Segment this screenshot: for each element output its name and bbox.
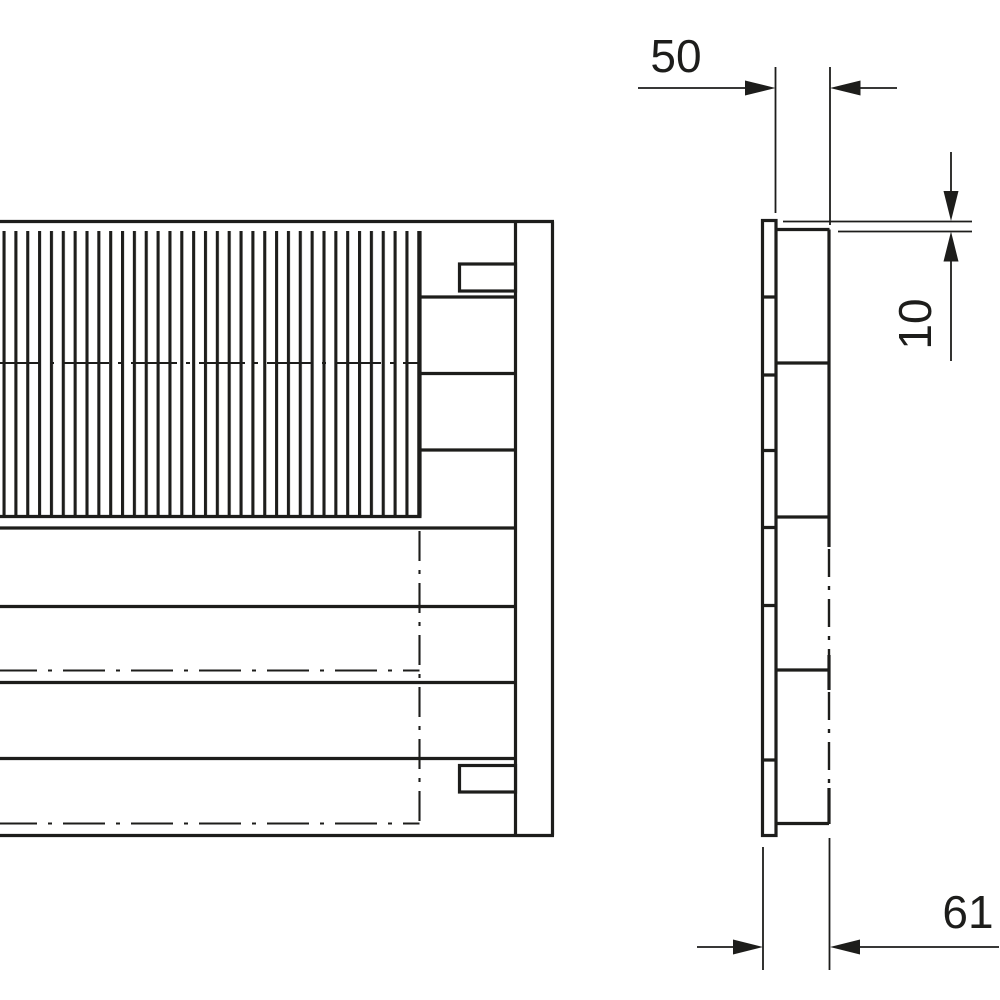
front-section-lines-column [420, 297, 516, 450]
dim10-arrow-up [944, 232, 959, 262]
technical-drawing: 50 10 61 [0, 0, 1000, 1000]
dim61-label: 61 [942, 886, 993, 938]
side-body-section-lines [776, 363, 829, 670]
fin-hatch-area [0, 231, 422, 517]
dim61-arrow-left [830, 940, 860, 955]
side-body-outline [776, 230, 830, 825]
dim10-arrow-down [944, 191, 959, 221]
front-view [0, 222, 554, 836]
mount-tab-bottom [460, 766, 516, 793]
mount-tab-top [460, 264, 516, 291]
dim50-extension-lines [776, 67, 831, 225]
dim50-arrow-left [830, 81, 861, 96]
side-view [763, 221, 830, 836]
drawing-canvas: 50 10 61 [0, 0, 1000, 1000]
dim61-arrow-right [733, 940, 763, 955]
dim61-extension-lines [763, 838, 830, 970]
dimension-50: 50 [638, 30, 897, 225]
dim50-arrow-right [745, 81, 776, 96]
dimension-10: 10 [783, 152, 972, 361]
dim50-label: 50 [650, 30, 701, 82]
dimension-61: 61 [697, 838, 999, 970]
dim10-label: 10 [889, 298, 941, 349]
front-section-lines-full [0, 528, 516, 759]
